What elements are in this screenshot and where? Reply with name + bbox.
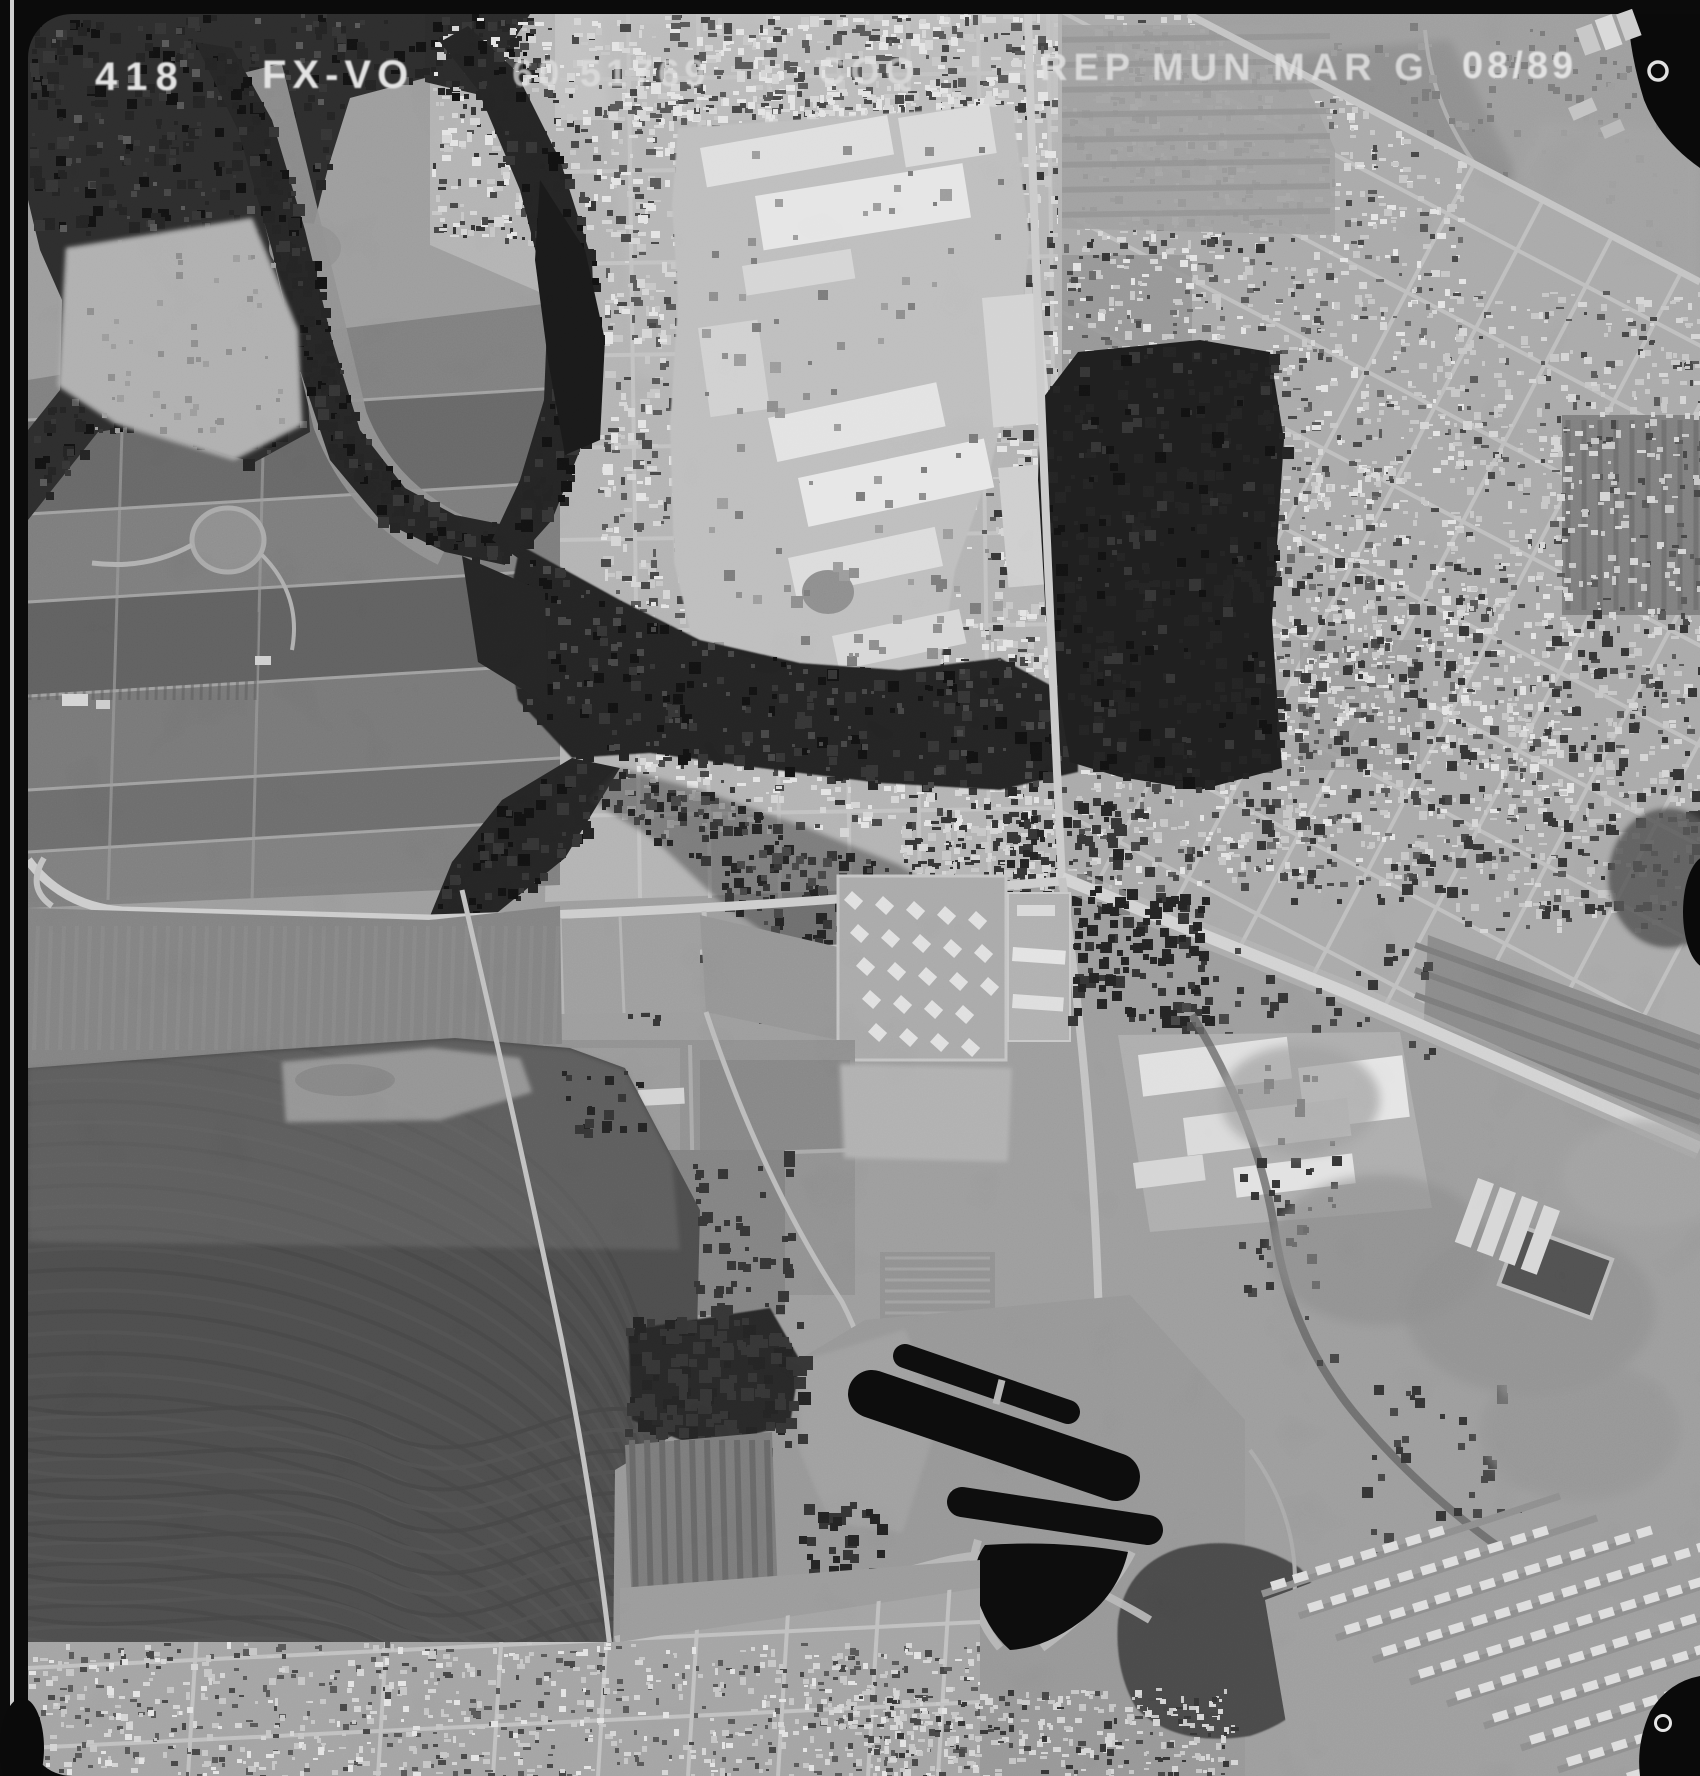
svg-text:COQ: COQ <box>818 51 920 93</box>
svg-text:08/89: 08/89 <box>1462 45 1577 87</box>
svg-text:REP MUN MAR G: REP MUN MAR G <box>1040 47 1430 89</box>
svg-text:60 51769: 60 51769 <box>512 53 711 95</box>
svg-text:FX-VO: FX-VO <box>262 53 414 97</box>
svg-text:418: 418 <box>95 55 186 99</box>
